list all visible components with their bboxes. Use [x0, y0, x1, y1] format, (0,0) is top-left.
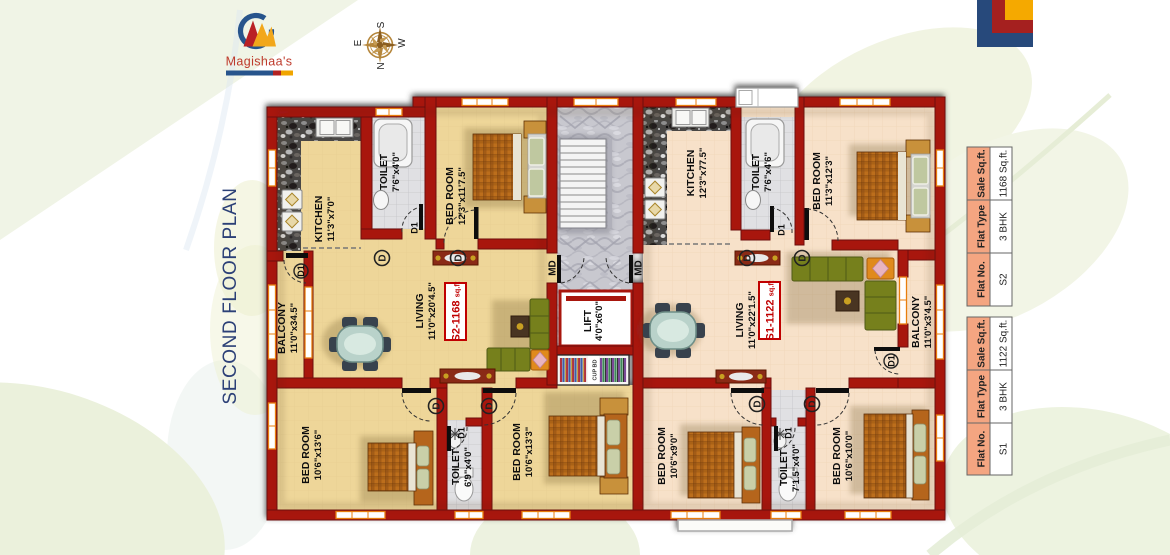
svg-text:S1: S1	[999, 442, 1010, 455]
svg-text:KITCHEN: KITCHEN	[685, 150, 697, 197]
svg-text:D: D	[798, 254, 809, 261]
svg-text:11'0"x3'4.5": 11'0"x3'4.5"	[923, 296, 934, 349]
svg-text:BED ROOM: BED ROOM	[511, 423, 523, 481]
svg-text:Flat Type: Flat Type	[977, 374, 988, 418]
svg-text:S2-1168 sq.ft: S2-1168 sq.ft	[451, 281, 463, 341]
svg-text:10'6"x13'3": 10'6"x13'3"	[524, 427, 535, 478]
svg-text:10'6"x9'0": 10'6"x9'0"	[669, 433, 680, 478]
svg-text:BALCONY: BALCONY	[910, 296, 922, 348]
svg-text:12'3"x77.5": 12'3"x77.5"	[698, 148, 709, 199]
svg-text:D1: D1	[887, 355, 897, 367]
svg-text:TOILET: TOILET	[379, 153, 390, 190]
svg-text:E: E	[353, 39, 364, 46]
svg-text:W: W	[397, 38, 408, 48]
svg-text:3 BHK: 3 BHK	[999, 382, 1010, 411]
svg-text:Flat No.: Flat No.	[977, 430, 988, 467]
svg-text:BED ROOM: BED ROOM	[831, 427, 843, 485]
svg-text:1168 Sq.ft.: 1168 Sq.ft.	[999, 150, 1010, 198]
svg-text:11'0"x34.5": 11'0"x34.5"	[289, 303, 300, 353]
svg-text:Sale Sq.ft.: Sale Sq.ft.	[977, 319, 988, 368]
svg-text:12'3"x11'7.5": 12'3"x11'7.5"	[457, 167, 468, 225]
svg-text:TOILET: TOILET	[451, 448, 462, 485]
svg-text:6'9"x4'0": 6'9"x4'0"	[463, 447, 474, 487]
svg-text:10'6"x10'0": 10'6"x10'0"	[844, 431, 855, 482]
svg-text:S2: S2	[999, 273, 1010, 286]
svg-text:TOILET: TOILET	[779, 449, 790, 486]
svg-text:MD: MD	[548, 260, 559, 276]
svg-text:4'0"x6'0": 4'0"x6'0"	[594, 301, 605, 341]
svg-text:D: D	[454, 254, 465, 261]
svg-text:Flat No.: Flat No.	[977, 261, 988, 298]
svg-text:7'6"x4'6": 7'6"x4'6"	[763, 152, 774, 192]
svg-text:Flat Type: Flat Type	[977, 204, 988, 248]
svg-text:N: N	[376, 62, 387, 69]
svg-text:S1-1122 sq.ft: S1-1122 sq.ft	[765, 280, 777, 340]
svg-text:BED ROOM: BED ROOM	[444, 167, 456, 225]
svg-text:D1: D1	[296, 265, 306, 277]
svg-text:D1: D1	[410, 222, 420, 234]
svg-text:3 BHK: 3 BHK	[999, 212, 1010, 241]
svg-text:TOILET: TOILET	[751, 153, 762, 190]
svg-text:1122 Sq.ft.: 1122 Sq.ft.	[999, 320, 1010, 368]
svg-text:LIVING: LIVING	[414, 293, 426, 328]
svg-text:D: D	[743, 254, 754, 261]
svg-text:D: D	[485, 402, 496, 409]
svg-text:BED ROOM: BED ROOM	[656, 427, 668, 485]
svg-text:Magishaa's: Magishaa's	[226, 55, 293, 69]
svg-text:MD: MD	[634, 260, 645, 276]
svg-text:D: D	[808, 400, 819, 407]
svg-text:Sale Sq.ft.: Sale Sq.ft.	[977, 149, 988, 198]
svg-text:D1: D1	[457, 427, 467, 439]
svg-text:S: S	[376, 21, 387, 28]
svg-text:BED ROOM: BED ROOM	[811, 152, 823, 210]
svg-text:LIFT: LIFT	[582, 309, 594, 332]
svg-text:D1: D1	[784, 427, 794, 439]
svg-text:BED ROOM: BED ROOM	[300, 426, 312, 484]
svg-text:D: D	[753, 400, 764, 407]
svg-text:7'6"x4'0": 7'6"x4'0"	[391, 152, 402, 192]
svg-text:KITCHEN: KITCHEN	[313, 196, 325, 243]
svg-text:7'1.5"x4'0": 7'1.5"x4'0"	[791, 444, 802, 492]
svg-text:11'3"x7'0": 11'3"x7'0"	[326, 197, 337, 242]
svg-text:D1: D1	[777, 224, 787, 236]
svg-text:10'6"x13'6": 10'6"x13'6"	[313, 430, 324, 481]
svg-text:BALCONY: BALCONY	[276, 302, 288, 354]
svg-text:SECOND FLOOR PLAN: SECOND FLOOR PLAN	[220, 187, 241, 404]
svg-text:11'0"x20'4.5": 11'0"x20'4.5"	[427, 282, 438, 340]
svg-text:11'3"x12'3": 11'3"x12'3"	[824, 156, 835, 206]
svg-text:D: D	[432, 402, 443, 409]
svg-text:CUP BD: CUP BD	[593, 359, 599, 380]
svg-text:LIVING: LIVING	[734, 302, 746, 337]
svg-text:11'0"x22'1.5": 11'0"x22'1.5"	[747, 291, 758, 349]
svg-text:D: D	[378, 254, 389, 261]
